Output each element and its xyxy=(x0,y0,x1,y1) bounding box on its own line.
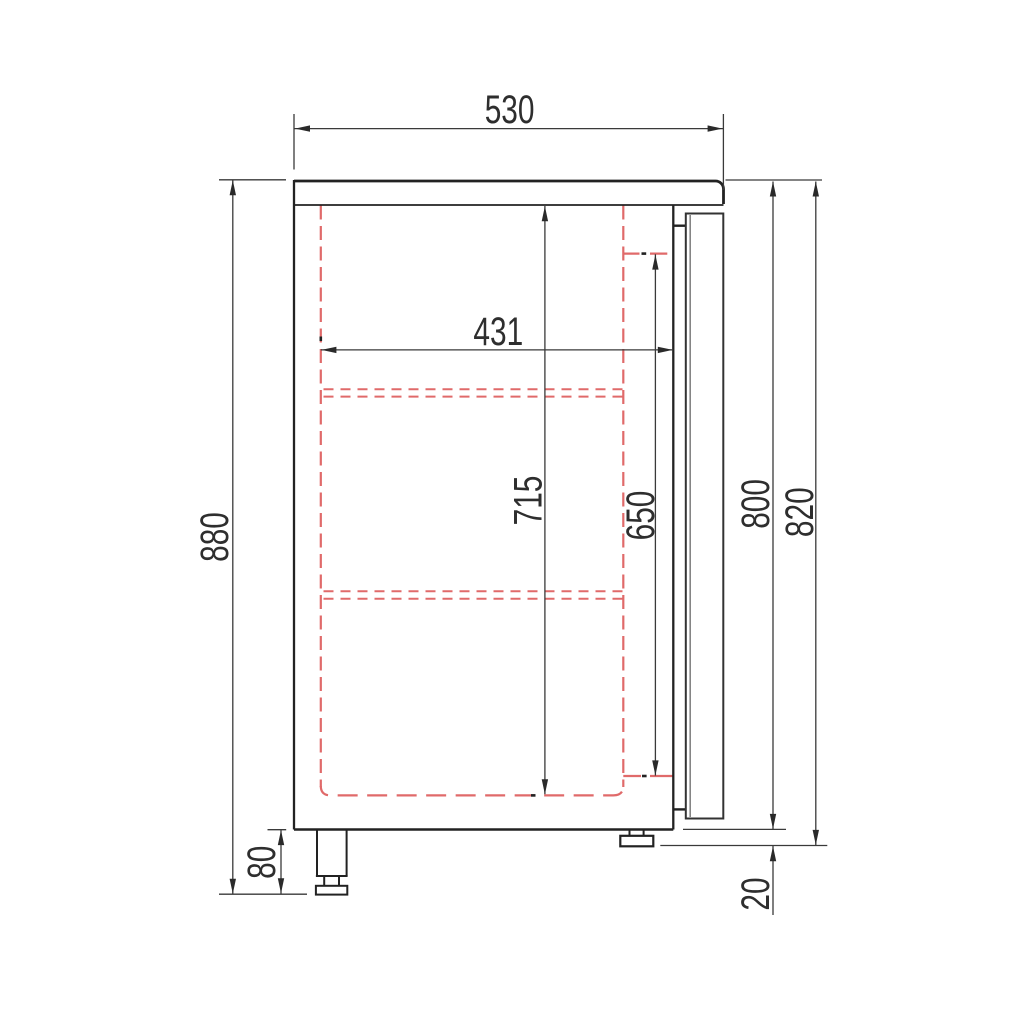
svg-text:431: 431 xyxy=(473,310,523,354)
svg-text:20: 20 xyxy=(734,877,778,910)
svg-text:530: 530 xyxy=(485,88,535,132)
svg-text:715: 715 xyxy=(507,476,551,526)
svg-text:650: 650 xyxy=(619,491,663,541)
svg-text:880: 880 xyxy=(193,512,237,562)
svg-text:820: 820 xyxy=(778,487,822,537)
svg-text:80: 80 xyxy=(240,846,284,879)
svg-text:800: 800 xyxy=(734,479,778,529)
